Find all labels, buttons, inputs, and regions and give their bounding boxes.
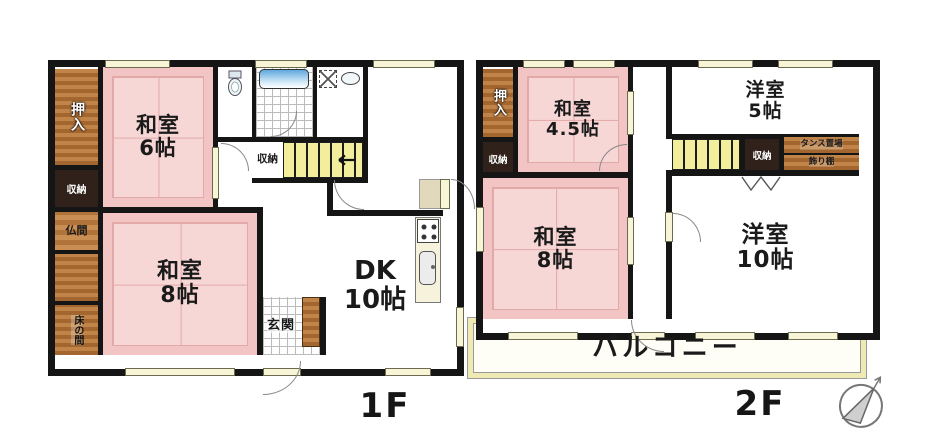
window <box>508 332 578 340</box>
window <box>523 60 565 68</box>
wood-alcove <box>55 254 98 301</box>
room-washitsu6: 和室 6帖 <box>103 67 213 207</box>
window <box>698 60 753 68</box>
floor1-label: 1F <box>330 386 440 426</box>
floor1-plan: 押入 収納 仏間 床の間 和室 6帖 <box>48 60 464 376</box>
washing-machine-icon <box>319 70 337 88</box>
oshiire-1f-label: 押入 <box>69 102 84 132</box>
wall <box>320 297 326 355</box>
back-porch <box>419 179 441 209</box>
room-yoshitsu5: 洋室 5帖 <box>672 67 859 134</box>
door-arc <box>334 180 364 210</box>
window <box>476 207 484 252</box>
door-arc <box>451 179 475 209</box>
window <box>385 368 431 376</box>
staircase-2f <box>672 139 740 170</box>
door-arc <box>221 143 249 171</box>
toilet-icon <box>227 70 243 98</box>
room-washroom <box>317 67 363 137</box>
faucet-dot <box>431 265 435 269</box>
yoshitsu5-label: 洋室 5帖 <box>745 80 785 121</box>
tansu-okiba-label: タンス置場 <box>800 140 842 149</box>
compass-icon <box>828 365 896 437</box>
window <box>778 60 833 68</box>
washbasin-icon <box>341 72 360 85</box>
floorplan-image: バルコニー 押入 収納 仏間 床の間 和室 6帖 <box>0 0 932 447</box>
room-storage-left-1f: 収納 <box>55 170 98 207</box>
butsuma-label: 仏間 <box>66 225 88 237</box>
room-yoshitsu10: 洋室 10帖 <box>672 176 859 319</box>
room-storage-mid-2f: 収納 <box>745 139 779 170</box>
stairs-arrow-icon <box>331 154 357 166</box>
dk-label: DK 10帖 <box>333 257 417 313</box>
bathtub <box>259 69 309 89</box>
room-storage-left-2f: 収納 <box>483 142 513 175</box>
washitsu6-label: 和室 6帖 <box>136 114 180 159</box>
washitsu45-label: 和室 4.5帖 <box>546 100 600 139</box>
storage-mid-zone: 収納 <box>252 142 283 178</box>
room-kazaridana: 飾り棚 <box>784 155 859 170</box>
sliding-door <box>212 147 219 199</box>
window <box>125 368 235 376</box>
stove-icon <box>417 219 439 243</box>
back-door <box>440 179 450 209</box>
room-washitsu8-2f: 和室 8帖 <box>483 178 628 319</box>
yoshitsu10-label: 洋室 10帖 <box>736 223 794 273</box>
tokonoma-label: 床の間 <box>71 315 82 345</box>
sliding-door <box>627 91 634 135</box>
washitsu8-2f-label: 和室 8帖 <box>534 226 578 271</box>
wall <box>363 67 368 183</box>
window <box>105 60 170 68</box>
room-washitsu8-1f: 和室 8帖 <box>103 213 257 355</box>
balcony-label: バルコニー <box>592 334 741 362</box>
floor2-label: 2F <box>705 384 815 424</box>
window <box>255 60 307 68</box>
oshiire-2f-label: 押入 <box>491 89 505 117</box>
sliding-door <box>627 217 634 265</box>
room-tokonoma: 床の間 <box>55 305 98 355</box>
window <box>373 60 435 68</box>
washitsu8-1f-label: 和室 8帖 <box>157 260 203 308</box>
genkan-label: 玄関 <box>267 319 295 333</box>
window <box>456 307 464 347</box>
room-butsuma: 仏間 <box>55 212 98 250</box>
storage-left-1f-label: 収納 <box>67 181 87 196</box>
room-oshiire-2f: 押入 <box>483 69 513 137</box>
room-oshiire-1f: 押入 <box>55 69 98 165</box>
storage-left-2f-label: 収納 <box>488 152 507 166</box>
window <box>788 332 838 340</box>
storage-mid-1f-label: 収納 <box>257 154 278 165</box>
window <box>573 60 615 68</box>
folding-door-icon <box>741 176 781 192</box>
entry-door-arc <box>263 361 301 395</box>
storage-mid-2f-label: 収納 <box>752 148 771 162</box>
room-toilet <box>218 67 252 137</box>
floor2-plan: 押入 収納 和室 4.5帖 和室 8帖 <box>476 60 880 340</box>
sliding-door <box>665 212 673 242</box>
room-tansu-okiba: タンス置場 <box>784 137 859 153</box>
kazaridana-label: 飾り棚 <box>809 158 835 167</box>
shoe-cabinet <box>302 297 320 347</box>
